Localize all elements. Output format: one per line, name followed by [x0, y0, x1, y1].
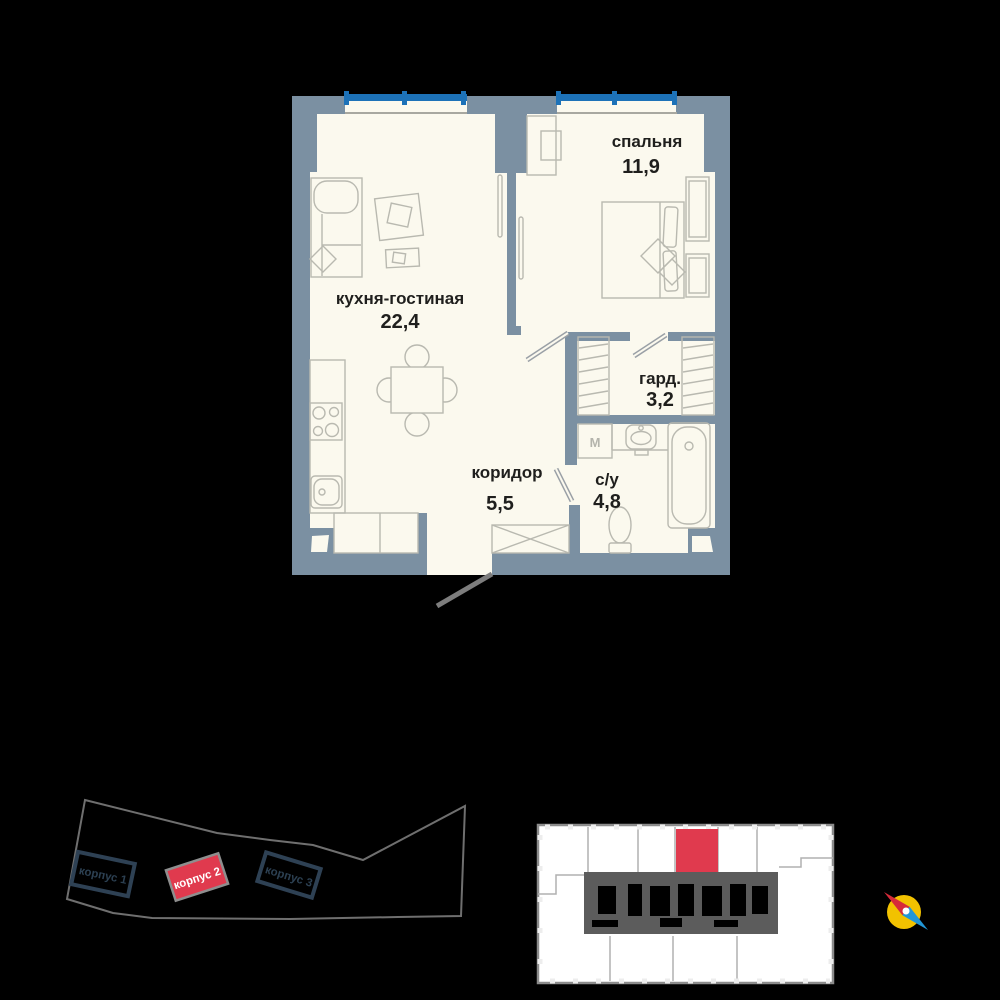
building-label-korpus-1: корпус 1	[78, 865, 129, 887]
toilet	[609, 507, 631, 553]
site-plan: корпус 1 корпус 2 корпус 3	[67, 800, 465, 919]
apartment-floor-plan: кухня-гостиная 22,4 спальня 11,9 гард. 3…	[292, 91, 730, 606]
corridor-closet	[492, 525, 569, 553]
compass-icon	[884, 892, 928, 930]
room-area-kitchen-living: 22,4	[381, 311, 421, 333]
compass-pivot	[903, 908, 910, 915]
room-area-corridor: 5,5	[486, 493, 514, 515]
room-label-wardrobe: гард.	[639, 369, 681, 388]
room-area-wardrobe: 3,2	[646, 389, 674, 411]
floor-overview	[538, 825, 833, 983]
bed	[602, 202, 685, 298]
room-label-corridor: коридор	[471, 463, 542, 482]
room-area-bathroom: 4,8	[593, 491, 621, 513]
screenshot-canvas: кухня-гостиная 22,4 спальня 11,9 гард. 3…	[0, 0, 1000, 1000]
room-label-kitchen-living: кухня-гостиная	[336, 289, 464, 308]
column-notch	[311, 535, 329, 552]
room-area-bedroom: 11,9	[622, 156, 660, 178]
scene: кухня-гостиная 22,4 спальня 11,9 гард. 3…	[0, 0, 1000, 1000]
room-label-bedroom: спальня	[612, 132, 683, 151]
room-label-bathroom: с/у	[595, 470, 619, 489]
entrance-door-swing	[437, 574, 492, 606]
highlighted-unit[interactable]	[676, 829, 718, 872]
building-core	[584, 872, 778, 934]
column-notch	[692, 536, 713, 552]
washing-machine-label: M	[590, 435, 601, 450]
